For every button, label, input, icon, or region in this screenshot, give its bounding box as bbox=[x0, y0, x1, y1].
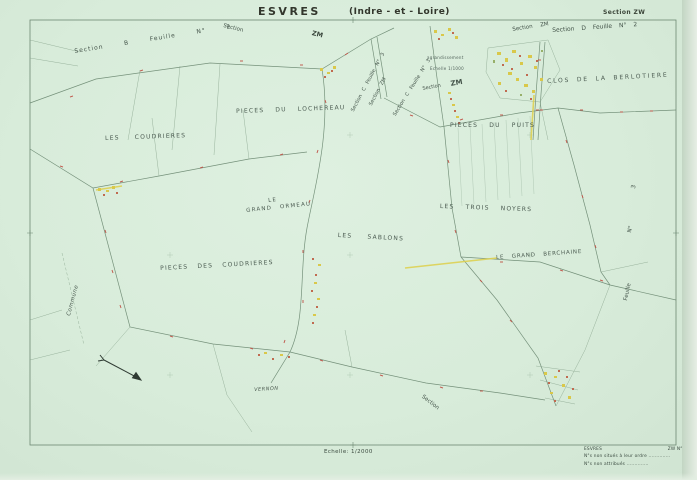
label-enlargement-note-2: Echelle 1/1000 bbox=[430, 66, 464, 71]
north-arrow bbox=[98, 355, 141, 380]
scan-edge-bottom bbox=[0, 473, 697, 480]
cadastral-map-sheet: ESVRES (Indre - et - Loire) Section ZW S… bbox=[0, 0, 697, 480]
legend-line-unassigned-numbers: N°s non attribués .............. bbox=[584, 461, 694, 468]
road-yellow bbox=[96, 95, 534, 268]
place-le-grand-ormeau-line1: LE bbox=[268, 197, 278, 204]
scan-edge-right bbox=[682, 0, 697, 480]
page-title-commune: ESVRES bbox=[258, 5, 321, 18]
building-clusters bbox=[98, 28, 574, 402]
place-pieces-du-puits: PIECES DU PUITS bbox=[450, 122, 535, 129]
label-enlargement-note-1: agrandissement bbox=[427, 55, 464, 60]
sheet-legend-block: ESVRES ZW N°s 1 à N°s non situés à leur … bbox=[584, 446, 694, 468]
scale-label: Echelle: 1/2000 bbox=[324, 449, 373, 455]
page-title-department: (Indre - et - Loire) bbox=[349, 7, 450, 17]
legend-line-unplaced-numbers: N°s non situés à leur ordre ............… bbox=[584, 453, 694, 460]
legend-commune: ESVRES bbox=[584, 446, 602, 453]
map-linework bbox=[0, 0, 697, 480]
place-vernon: VERNON bbox=[254, 386, 279, 393]
sheet-section-label: Section ZW bbox=[603, 9, 645, 16]
